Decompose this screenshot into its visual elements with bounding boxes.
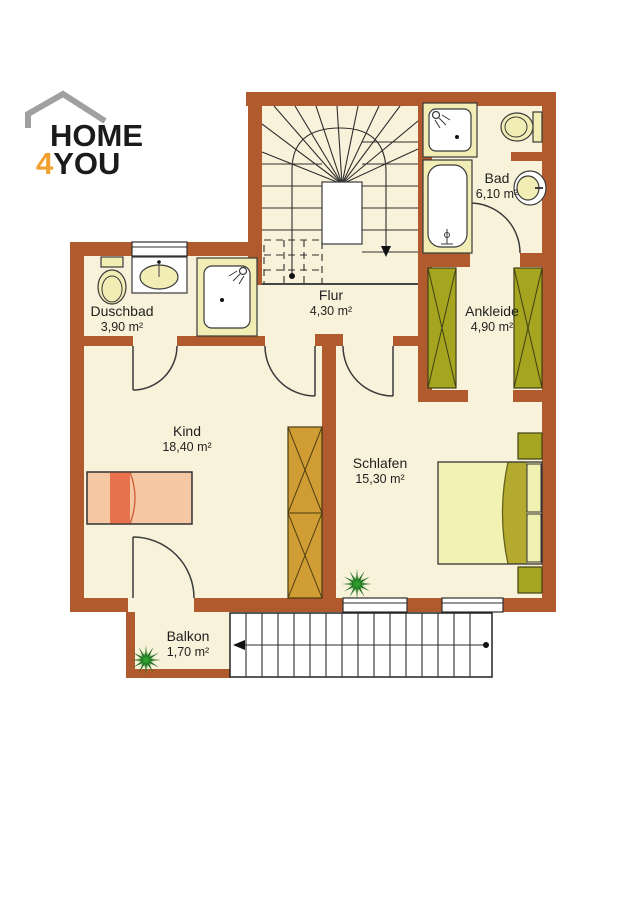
floor-plan-page: HOME 4YOU [0, 0, 635, 900]
wardrobe-icon [428, 268, 456, 388]
room-area: 18,40 m² [162, 440, 211, 455]
room-name: Ankleide [465, 303, 519, 320]
room-label-duschbad: Duschbad 3,90 m² [90, 303, 153, 334]
wall-stair-left [248, 92, 262, 285]
floor-opening-balcony-door [128, 598, 194, 612]
wall-top [246, 92, 556, 106]
floor-opening-ankleide [468, 390, 513, 402]
floor-opening-schlafen-door [343, 336, 393, 346]
wall-bad-bottom-2 [520, 253, 542, 267]
wall-bottom-3 [407, 598, 442, 612]
toilet-icon [501, 112, 542, 142]
room-area: 4,90 m² [465, 320, 519, 335]
walkline-end-dot [483, 642, 489, 648]
wall-balcony-left [126, 612, 135, 678]
wall-bottom-4 [503, 598, 556, 612]
floor-opening-kind-door [265, 336, 315, 346]
wall-kind-schlafen [322, 346, 336, 598]
room-area: 3,90 m² [90, 320, 153, 335]
wall-bottom-2 [194, 598, 343, 612]
wall-left [70, 242, 84, 612]
floor-opening-bad-door [470, 253, 520, 267]
toilet-icon [98, 257, 126, 304]
wall-right [542, 92, 556, 612]
shower-icon [197, 258, 257, 336]
wall-ankleide-stub-1 [418, 390, 468, 402]
double-bed [438, 462, 542, 564]
bathtub-icon [423, 160, 472, 253]
floor-opening-duschbad-door [133, 336, 177, 346]
shower-icon [423, 103, 477, 157]
stair-void [322, 182, 362, 244]
room-area: 4,30 m² [310, 304, 352, 319]
room-label-bad: Bad 6,10 m² [476, 170, 518, 201]
exterior-staircase [230, 613, 492, 677]
sink-icon [514, 171, 546, 205]
room-label-balkon: Balkon 1,70 m² [167, 628, 210, 659]
wall-duschbad-top-1 [70, 242, 132, 256]
room-label-ankleide: Ankleide 4,90 m² [465, 303, 519, 334]
nightstand-icon [518, 567, 542, 593]
wall-flur-bottom-right [393, 336, 418, 346]
room-area: 1,70 m² [167, 645, 210, 660]
room-name: Balkon [167, 628, 210, 645]
wall-bad-bottom-1 [418, 253, 470, 267]
room-area: 15,30 m² [353, 472, 407, 487]
walkline-start-dot [289, 273, 295, 279]
wall-duschbad-bottom-1 [84, 336, 133, 346]
nightstand-icon [518, 433, 542, 459]
wall-ankleide-stub-2 [513, 390, 542, 402]
room-name: Kind [162, 423, 211, 440]
room-label-flur: Flur 4,30 m² [310, 287, 352, 318]
room-label-schlafen: Schlafen 15,30 m² [353, 455, 407, 486]
window-schlafen-2 [442, 598, 503, 612]
wall-flur-stub [315, 334, 343, 346]
wall-toilet-stub [511, 152, 542, 161]
wall-balcony-bottom [126, 669, 230, 678]
kind-bed [87, 472, 192, 524]
kind-wardrobe-icon [288, 427, 322, 598]
floor-plan-svg [0, 0, 635, 900]
window-duschbad [132, 242, 187, 256]
wall-duschbad-bottom-2 [177, 336, 265, 346]
window-schlafen-1 [343, 598, 407, 612]
sink-icon [132, 257, 187, 293]
room-name: Bad [476, 170, 518, 187]
room-label-kind: Kind 18,40 m² [162, 423, 211, 454]
room-area: 6,10 m² [476, 187, 518, 202]
room-name: Duschbad [90, 303, 153, 320]
room-name: Flur [310, 287, 352, 304]
room-name: Schlafen [353, 455, 407, 472]
